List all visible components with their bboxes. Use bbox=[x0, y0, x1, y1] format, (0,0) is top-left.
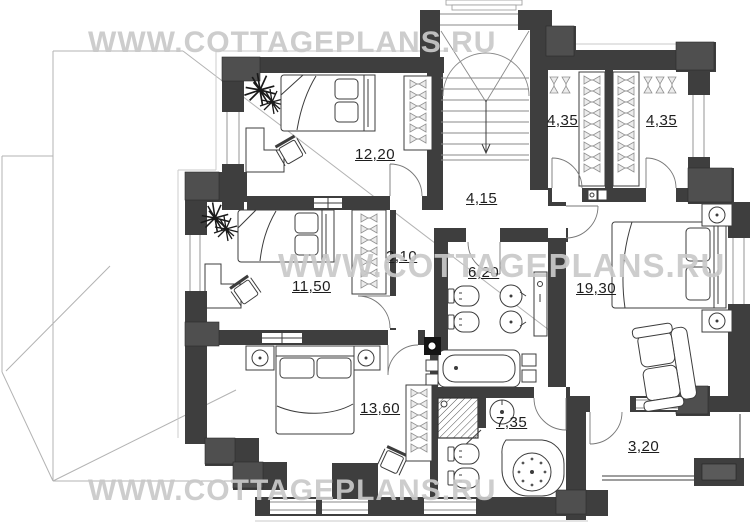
closet-icon bbox=[404, 76, 432, 150]
shelf-icon bbox=[522, 354, 536, 366]
closet-icon bbox=[352, 210, 386, 294]
shelf-icon bbox=[426, 374, 438, 385]
nightstand-icon bbox=[702, 204, 732, 226]
room-area-label-master-bedroom: 19,30 bbox=[576, 280, 616, 297]
room-area-label-bedroom-middle: 11,50 bbox=[292, 278, 331, 295]
closet-icon bbox=[406, 385, 432, 461]
wardrobe-left-furniture bbox=[550, 72, 605, 186]
desk-icon bbox=[246, 128, 284, 172]
toilet-icon bbox=[448, 444, 479, 464]
chair-icon bbox=[229, 275, 261, 306]
room-area-label-wardrobe-right: 4,35 bbox=[646, 112, 677, 129]
chair-icon bbox=[377, 446, 408, 475]
room-area-label-bedroom-top: 12,20 bbox=[355, 146, 395, 163]
floor-plan-canvas: WWW.COTTAGEPLANS.RU WWW.COTTAGEPLANS.RU … bbox=[0, 0, 754, 531]
room-area-label-hall: 4,15 bbox=[466, 190, 497, 207]
bathroom-ensuite-fixtures bbox=[438, 398, 564, 496]
toilet-icon bbox=[448, 312, 479, 332]
shelf-icon bbox=[522, 370, 536, 382]
jacuzzi-icon bbox=[502, 440, 564, 496]
toilet-icon bbox=[448, 286, 479, 306]
room-area-label-bathroom-main: 6,20 bbox=[468, 264, 499, 281]
bed-icon bbox=[238, 210, 334, 262]
bedroom-bottom-furniture bbox=[246, 346, 432, 475]
room-area-label-bedroom-bottom: 13,60 bbox=[360, 400, 400, 417]
nightstand-icon bbox=[702, 310, 732, 332]
staircase bbox=[441, 31, 529, 160]
master-bedroom-furniture bbox=[612, 204, 732, 412]
bed-icon bbox=[276, 346, 354, 434]
sink-icon bbox=[500, 311, 526, 333]
chair-icon bbox=[275, 136, 306, 166]
bathtub-icon bbox=[438, 350, 520, 387]
bed-icon bbox=[281, 75, 375, 131]
wardrobe-right-furniture bbox=[613, 72, 676, 186]
wall-cabinet-icon bbox=[588, 190, 607, 200]
bidet-icon bbox=[448, 468, 479, 488]
room-area-label-corridor: 3,10 bbox=[386, 248, 417, 265]
entry-steps bbox=[446, 0, 522, 10]
shelf-icon bbox=[426, 360, 438, 371]
bedroom-top-furniture bbox=[244, 73, 432, 172]
room-area-label-bathroom-ensuite: 7,35 bbox=[496, 414, 527, 431]
nightstand-icon bbox=[246, 346, 274, 370]
bed-icon bbox=[612, 222, 726, 308]
shower-icon bbox=[438, 398, 486, 447]
nightstand-icon bbox=[352, 346, 380, 370]
room-area-label-balcony: 3,20 bbox=[628, 438, 659, 455]
room-area-label-wardrobe-left: 4,35 bbox=[547, 112, 578, 129]
vent-shaft-icon bbox=[424, 337, 441, 355]
sink-icon bbox=[500, 285, 526, 307]
balcony-structure bbox=[602, 414, 744, 486]
